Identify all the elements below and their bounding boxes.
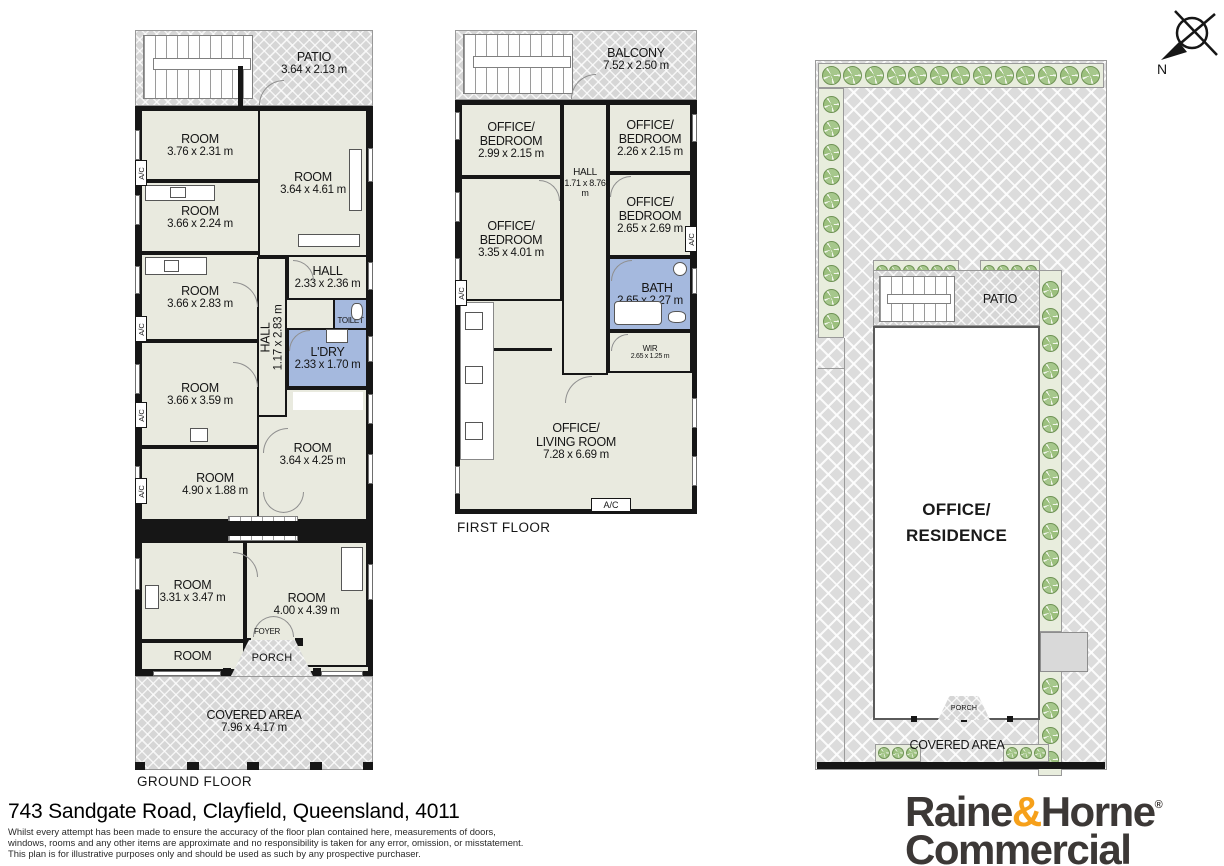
room-dims-label: 1.71 x 8.76 m	[564, 178, 606, 198]
building-name-label: RESIDENCE	[906, 523, 1007, 549]
window	[368, 454, 373, 484]
window	[455, 192, 460, 222]
hedge-right	[1038, 270, 1062, 632]
post	[363, 762, 373, 770]
bush-icon	[823, 144, 840, 161]
bush-icon	[1034, 747, 1046, 759]
bush-icon	[973, 66, 992, 85]
room-name-label: ROOM	[174, 578, 212, 592]
bush-icon	[908, 66, 927, 85]
hedge-top	[818, 63, 1104, 88]
room-dims-label: 3.35 x 4.01 m	[478, 247, 544, 260]
sink-fixture	[465, 422, 483, 440]
ac-label: A/C	[137, 323, 146, 336]
ground-floor-plan: PATIO 3.64 x 2.13 m ROOM 3.64 x 4.61 m R…	[135, 30, 373, 792]
bush-icon	[1042, 281, 1059, 298]
bush-icon	[1042, 335, 1059, 352]
bush-icon	[823, 192, 840, 209]
room-name-label: ROOM	[196, 471, 234, 485]
hallway: HALL 1.17 x 2.83 m	[257, 257, 287, 417]
bush-icon	[1016, 66, 1035, 85]
washer-fixture	[326, 329, 348, 343]
basin-fixture	[145, 585, 159, 609]
ac-label: A/C	[137, 409, 146, 422]
window	[692, 268, 697, 294]
room-dims-label: 2.26 x 2.15 m	[617, 146, 683, 159]
window	[135, 558, 140, 590]
room-name-label: HALL	[259, 322, 273, 352]
post	[911, 716, 917, 722]
bush-icon	[887, 66, 906, 85]
room: ROOM 3.66 x 2.24 m	[140, 181, 260, 253]
room-dims-label: 7.28 x 6.69 m	[543, 449, 609, 462]
room-name-label: COVERED AREA	[206, 708, 301, 722]
boundary-line	[844, 338, 845, 770]
ac-unit: A/C	[135, 160, 147, 186]
logo-line1: Raine&Horne®	[905, 786, 1163, 831]
site-plan: PATIO OFFICE/ RESIDENCE PORCH COVERED AR…	[815, 60, 1107, 782]
partial-wall	[494, 348, 552, 351]
room-dims-label: 2.65 x 1.25 m	[631, 353, 670, 361]
room-name-label: ROOM	[294, 441, 332, 455]
room-dims-label: 2.65 x 2.69 m	[617, 223, 683, 236]
compass-north-label: N	[1157, 61, 1167, 77]
office-bedroom: OFFICE/ BEDROOM 2.26 x 2.15 m	[608, 103, 692, 173]
bush-icon	[995, 66, 1014, 85]
bush-icon	[823, 168, 840, 185]
window	[368, 262, 373, 290]
room-name-label: BATH	[641, 281, 672, 295]
room-dims-label: 3.66 x 2.24 m	[167, 218, 233, 231]
bush-icon	[1042, 362, 1059, 379]
site-bottom-wall	[817, 762, 1105, 769]
bush-icon	[1060, 66, 1079, 85]
window	[455, 112, 460, 140]
ac-unit: A/C	[591, 498, 631, 512]
ff-balcony-label: BALCONY 7.52 x 2.50 m	[577, 46, 695, 73]
room-name-label: BEDROOM	[619, 132, 682, 146]
ac-label: A/C	[603, 500, 618, 510]
post	[187, 762, 199, 770]
room-name-label: BEDROOM	[480, 134, 543, 148]
ac-label: A/C	[137, 485, 146, 498]
sink-fixture	[164, 260, 179, 272]
room-dims-label: 2.33 x 1.70 m	[295, 359, 361, 372]
ac-unit: A/C	[135, 402, 147, 428]
bush-icon	[823, 241, 840, 258]
bush-icon	[878, 747, 890, 759]
ac-label: A/C	[137, 167, 146, 180]
room: ROOM 3.66 x 3.59 m	[140, 341, 260, 447]
bush-icon	[1006, 747, 1018, 759]
toilet-room: TOILET	[333, 298, 368, 330]
nook-fixture	[293, 392, 363, 410]
bush-icon	[1042, 442, 1059, 459]
room-name-label: ROOM	[288, 591, 326, 605]
bush-icon	[1042, 389, 1059, 406]
basin-fixture	[190, 428, 208, 442]
room-name-label: FOYER	[254, 627, 280, 636]
gf-covered-label: COVERED AREA 7.96 x 4.17 m	[135, 708, 373, 735]
foyer-label: FOYER	[247, 627, 287, 636]
window	[321, 671, 363, 676]
room-name-label: COVERED AREA	[909, 738, 1004, 752]
bush-icon	[1042, 416, 1059, 433]
post	[1007, 716, 1013, 722]
hallway: HALL 1.71 x 8.76 m	[562, 103, 608, 375]
office-residence-building: OFFICE/ RESIDENCE	[873, 326, 1040, 720]
bush-icon	[930, 66, 949, 85]
ff-stair-landing	[473, 56, 571, 68]
room-dims-label: 3.64 x 4.61 m	[280, 184, 346, 197]
compass-icon: N	[1145, 8, 1223, 78]
window	[135, 364, 140, 394]
shower-fixture	[341, 547, 363, 591]
room-name-label: OFFICE/	[487, 219, 534, 233]
room: ROOM 3.64 x 4.61 m	[258, 109, 368, 257]
wardrobe-fixture	[298, 234, 360, 247]
room-dims-label: 3.31 x 3.47 m	[160, 592, 226, 605]
ac-unit: A/C	[135, 316, 147, 342]
room-dims-label: 4.00 x 4.39 m	[274, 605, 340, 618]
room-name-label: ROOM	[174, 649, 212, 663]
site-covered-label: COVERED AREA	[907, 738, 1007, 752]
raine-horne-commercial-logo: Raine&Horne® Commercial	[905, 786, 1163, 866]
bush-icon	[951, 66, 970, 85]
room-dims-label: 4.90 x 1.88 m	[182, 485, 248, 498]
room-name-label: PORCH	[951, 705, 977, 712]
utility-box	[1040, 632, 1088, 672]
ac-label: A/C	[687, 233, 696, 246]
bush-icon	[823, 289, 840, 306]
disclaimer-line: Whilst every attempt has been made to en…	[8, 826, 496, 837]
room: ROOM 3.31 x 3.47 m	[140, 541, 245, 641]
bush-icon	[1042, 523, 1059, 540]
bush-icon	[1038, 66, 1057, 85]
sink-fixture	[170, 187, 186, 198]
bush-icon	[1042, 727, 1059, 744]
floor-plan-page: PATIO 3.64 x 2.13 m ROOM 3.64 x 4.61 m R…	[0, 0, 1224, 866]
room-dims-label: 3.66 x 3.59 m	[167, 395, 233, 408]
post	[247, 762, 259, 770]
bush-icon	[1081, 66, 1100, 85]
room-name-label: HALL	[573, 167, 597, 178]
bush-icon	[1042, 604, 1059, 621]
room-name-label: OFFICE/	[552, 421, 599, 435]
room-name-label: OFFICE/	[626, 195, 673, 209]
disclaimer-line: This plan is for illustrative purposes o…	[8, 848, 421, 859]
room-name-label: ROOM	[294, 170, 332, 184]
bush-icon	[1042, 550, 1059, 567]
room-name-label: WIR	[643, 344, 658, 353]
window	[692, 398, 697, 428]
post	[223, 668, 231, 676]
ac-unit: A/C	[455, 280, 467, 306]
hall-vertical-label: HALL 1.17 x 2.83 m	[259, 304, 286, 370]
bush-icon	[1042, 678, 1059, 695]
boundary-line	[818, 368, 844, 369]
sink-fixture	[465, 366, 483, 384]
room-dims-label: 1.17 x 2.83 m	[273, 304, 286, 370]
room-dims-label: 3.76 x 2.31 m	[167, 146, 233, 159]
bush-icon	[823, 313, 840, 330]
room-name-label: BEDROOM	[480, 233, 543, 247]
room-dims-label: 3.64 x 2.13 m	[281, 64, 347, 77]
window	[368, 148, 373, 182]
bush-icon	[843, 66, 862, 85]
room: ROOM	[140, 641, 245, 671]
room-name-label: LIVING ROOM	[536, 435, 616, 449]
first-floor-label: FIRST FLOOR	[457, 520, 550, 535]
ground-floor-label: GROUND FLOOR	[137, 774, 252, 789]
room-name-label: BALCONY	[607, 46, 665, 60]
room-name-label: OFFICE/	[487, 120, 534, 134]
post	[313, 668, 321, 676]
room-name-label: HALL	[312, 264, 342, 278]
bush-icon	[823, 265, 840, 282]
gf-wall-stub	[238, 66, 243, 106]
bush-icon	[1020, 747, 1032, 759]
hedge-left	[818, 88, 844, 338]
window	[135, 266, 140, 294]
window	[368, 394, 373, 424]
office-bedroom: OFFICE/ BEDROOM 2.99 x 2.15 m	[460, 103, 562, 177]
bush-icon	[823, 120, 840, 137]
hall-label: HALL 1.71 x 8.76 m	[564, 167, 606, 198]
window	[692, 114, 697, 142]
wardrobe-fixture	[349, 149, 362, 211]
window	[692, 456, 697, 486]
bush-icon	[1042, 308, 1059, 325]
bush-icon	[892, 747, 904, 759]
logo-line2: Commercial	[905, 831, 1163, 866]
window	[455, 466, 460, 494]
registered-mark: ®	[1155, 799, 1163, 811]
room-name-label: ROOM	[181, 132, 219, 146]
sink-fixture	[673, 262, 687, 276]
gf-stair-landing	[153, 58, 251, 70]
room-name-label: PATIO	[297, 50, 331, 64]
sink-fixture	[465, 312, 483, 330]
room-name-label: L'DRY	[310, 345, 344, 359]
bush-icon	[823, 216, 840, 233]
room-name-label: OFFICE/	[626, 118, 673, 132]
site-patio-label: PATIO	[965, 292, 1035, 306]
room-name-label: ROOM	[181, 284, 219, 298]
site-stair-landing	[887, 294, 951, 304]
room: ROOM 3.76 x 2.31 m	[140, 109, 260, 181]
bush-icon	[865, 66, 884, 85]
bush-icon	[823, 96, 840, 113]
room-name-label: PATIO	[983, 292, 1017, 306]
post	[135, 762, 145, 770]
gf-mid-wall	[135, 521, 373, 536]
window	[368, 336, 373, 362]
window	[135, 195, 140, 225]
property-address: 743 Sandgate Road, Clayfield, Queensland…	[8, 800, 460, 824]
bush-icon	[1042, 469, 1059, 486]
room-dims-label: 2.99 x 2.15 m	[478, 148, 544, 161]
room-name-label: BEDROOM	[619, 209, 682, 223]
toilet-fixture	[668, 311, 686, 323]
bush-icon	[1042, 496, 1059, 513]
ac-unit: A/C	[135, 478, 147, 504]
disclaimer-line: windows, rooms and any other items are a…	[8, 837, 523, 848]
hedge-bottom-right	[1003, 744, 1049, 762]
bush-icon	[1042, 702, 1059, 719]
room-name-label: ROOM	[181, 204, 219, 218]
ac-unit: A/C	[685, 226, 697, 252]
room-dims-label: 3.64 x 4.25 m	[280, 455, 346, 468]
room-dims-label: 7.52 x 2.50 m	[603, 60, 669, 73]
ac-label: A/C	[457, 287, 466, 300]
room-dims-label: 7.96 x 4.17 m	[221, 722, 287, 735]
window	[368, 564, 373, 600]
window	[135, 130, 140, 160]
room-name-label: ROOM	[181, 381, 219, 395]
room-dims-label: 3.66 x 2.83 m	[167, 298, 233, 311]
first-floor-plan: BALCONY 7.52 x 2.50 m OFFICE/ BEDROOM 2.…	[455, 30, 697, 536]
bush-icon	[822, 66, 841, 85]
post	[310, 762, 322, 770]
building-name-label: OFFICE/	[922, 497, 990, 523]
bathtub-fixture	[614, 301, 662, 325]
gf-patio-label: PATIO 3.64 x 2.13 m	[255, 50, 373, 77]
window	[153, 671, 221, 676]
toilet-fixture	[351, 303, 363, 320]
bush-icon	[1042, 577, 1059, 594]
room-name-label: PORCH	[252, 652, 293, 664]
